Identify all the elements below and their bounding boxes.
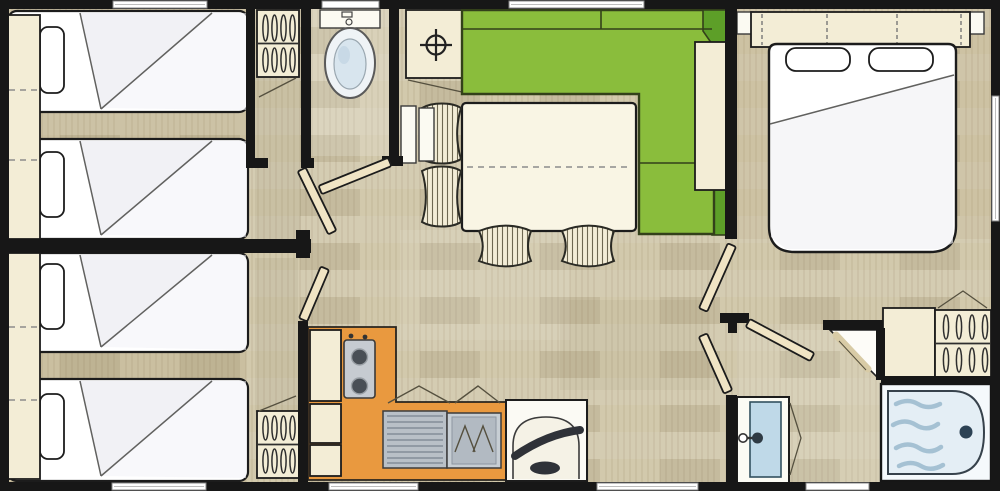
window-bathroom-bottom (806, 483, 869, 490)
headboard-shelf-2 (6, 253, 40, 479)
hob-burner-2 (352, 378, 368, 394)
wall-wc-left-stub (301, 158, 314, 168)
bed-4-pillow (40, 394, 64, 459)
wall-bedroom1-right (246, 9, 255, 162)
chair-left-2 (422, 167, 461, 227)
washbasin-faucet-knob (752, 433, 763, 444)
wall-bedroom-divider-stub (296, 230, 310, 258)
chair-bottom-1 (479, 226, 531, 267)
sofa-bolster-cushion (695, 42, 726, 190)
headboard-shelf-1 (6, 15, 40, 239)
wall-bedroom1-right-stub (246, 158, 268, 168)
kitchen-sink-basin (452, 417, 496, 464)
master-pillow-1 (786, 48, 850, 71)
window-wc-top (322, 1, 379, 8)
floorplan-canvas (0, 0, 1000, 491)
wall-washbasin-left (726, 395, 737, 482)
bed-2-pillow (40, 152, 64, 217)
wall-wc-right (389, 9, 399, 158)
washbasin-faucet-base (739, 434, 747, 442)
bath-closet-door (883, 308, 935, 378)
radiator-panel-1 (401, 106, 416, 163)
bathtub-drain (960, 426, 973, 439)
toilet-bowl-inner (334, 39, 366, 89)
kitchen-cabinet-mid (310, 404, 341, 443)
hob-burner-1 (352, 349, 368, 365)
wall-bath-triangle-right (876, 328, 885, 380)
chair-bottom-2 (562, 226, 614, 267)
floorplan-svg (0, 0, 1000, 491)
bed-3-pillow (40, 264, 64, 329)
fridge-handle-base (530, 462, 560, 475)
wall-kitchen-left (298, 321, 308, 482)
master-pillow-2 (869, 48, 933, 71)
kitchen-cabinet-lower (310, 445, 341, 476)
hob-knob-1 (349, 334, 354, 339)
bed-1-pillow (40, 27, 64, 93)
wall-closet-bottom (881, 376, 991, 385)
overhead-headboard-cabinet (751, 12, 970, 47)
hob-knob-2 (363, 335, 368, 340)
wall-wc-left (301, 9, 311, 159)
kitchen-cabinet-upper (310, 330, 341, 401)
floor-patch-2 (560, 300, 710, 390)
radiator-panel-2 (419, 108, 434, 161)
wall-bedroom-divider (0, 239, 311, 253)
wall-outer-right (991, 0, 1000, 491)
toilet-bowl-highlight (338, 46, 350, 64)
wall-bathroom-top (823, 320, 883, 330)
floor-closet-nook-bottom (255, 258, 298, 412)
wall-bath-tee-stem (728, 313, 737, 333)
master-bedroom (737, 12, 984, 252)
wall-living-master-divider (725, 9, 737, 239)
